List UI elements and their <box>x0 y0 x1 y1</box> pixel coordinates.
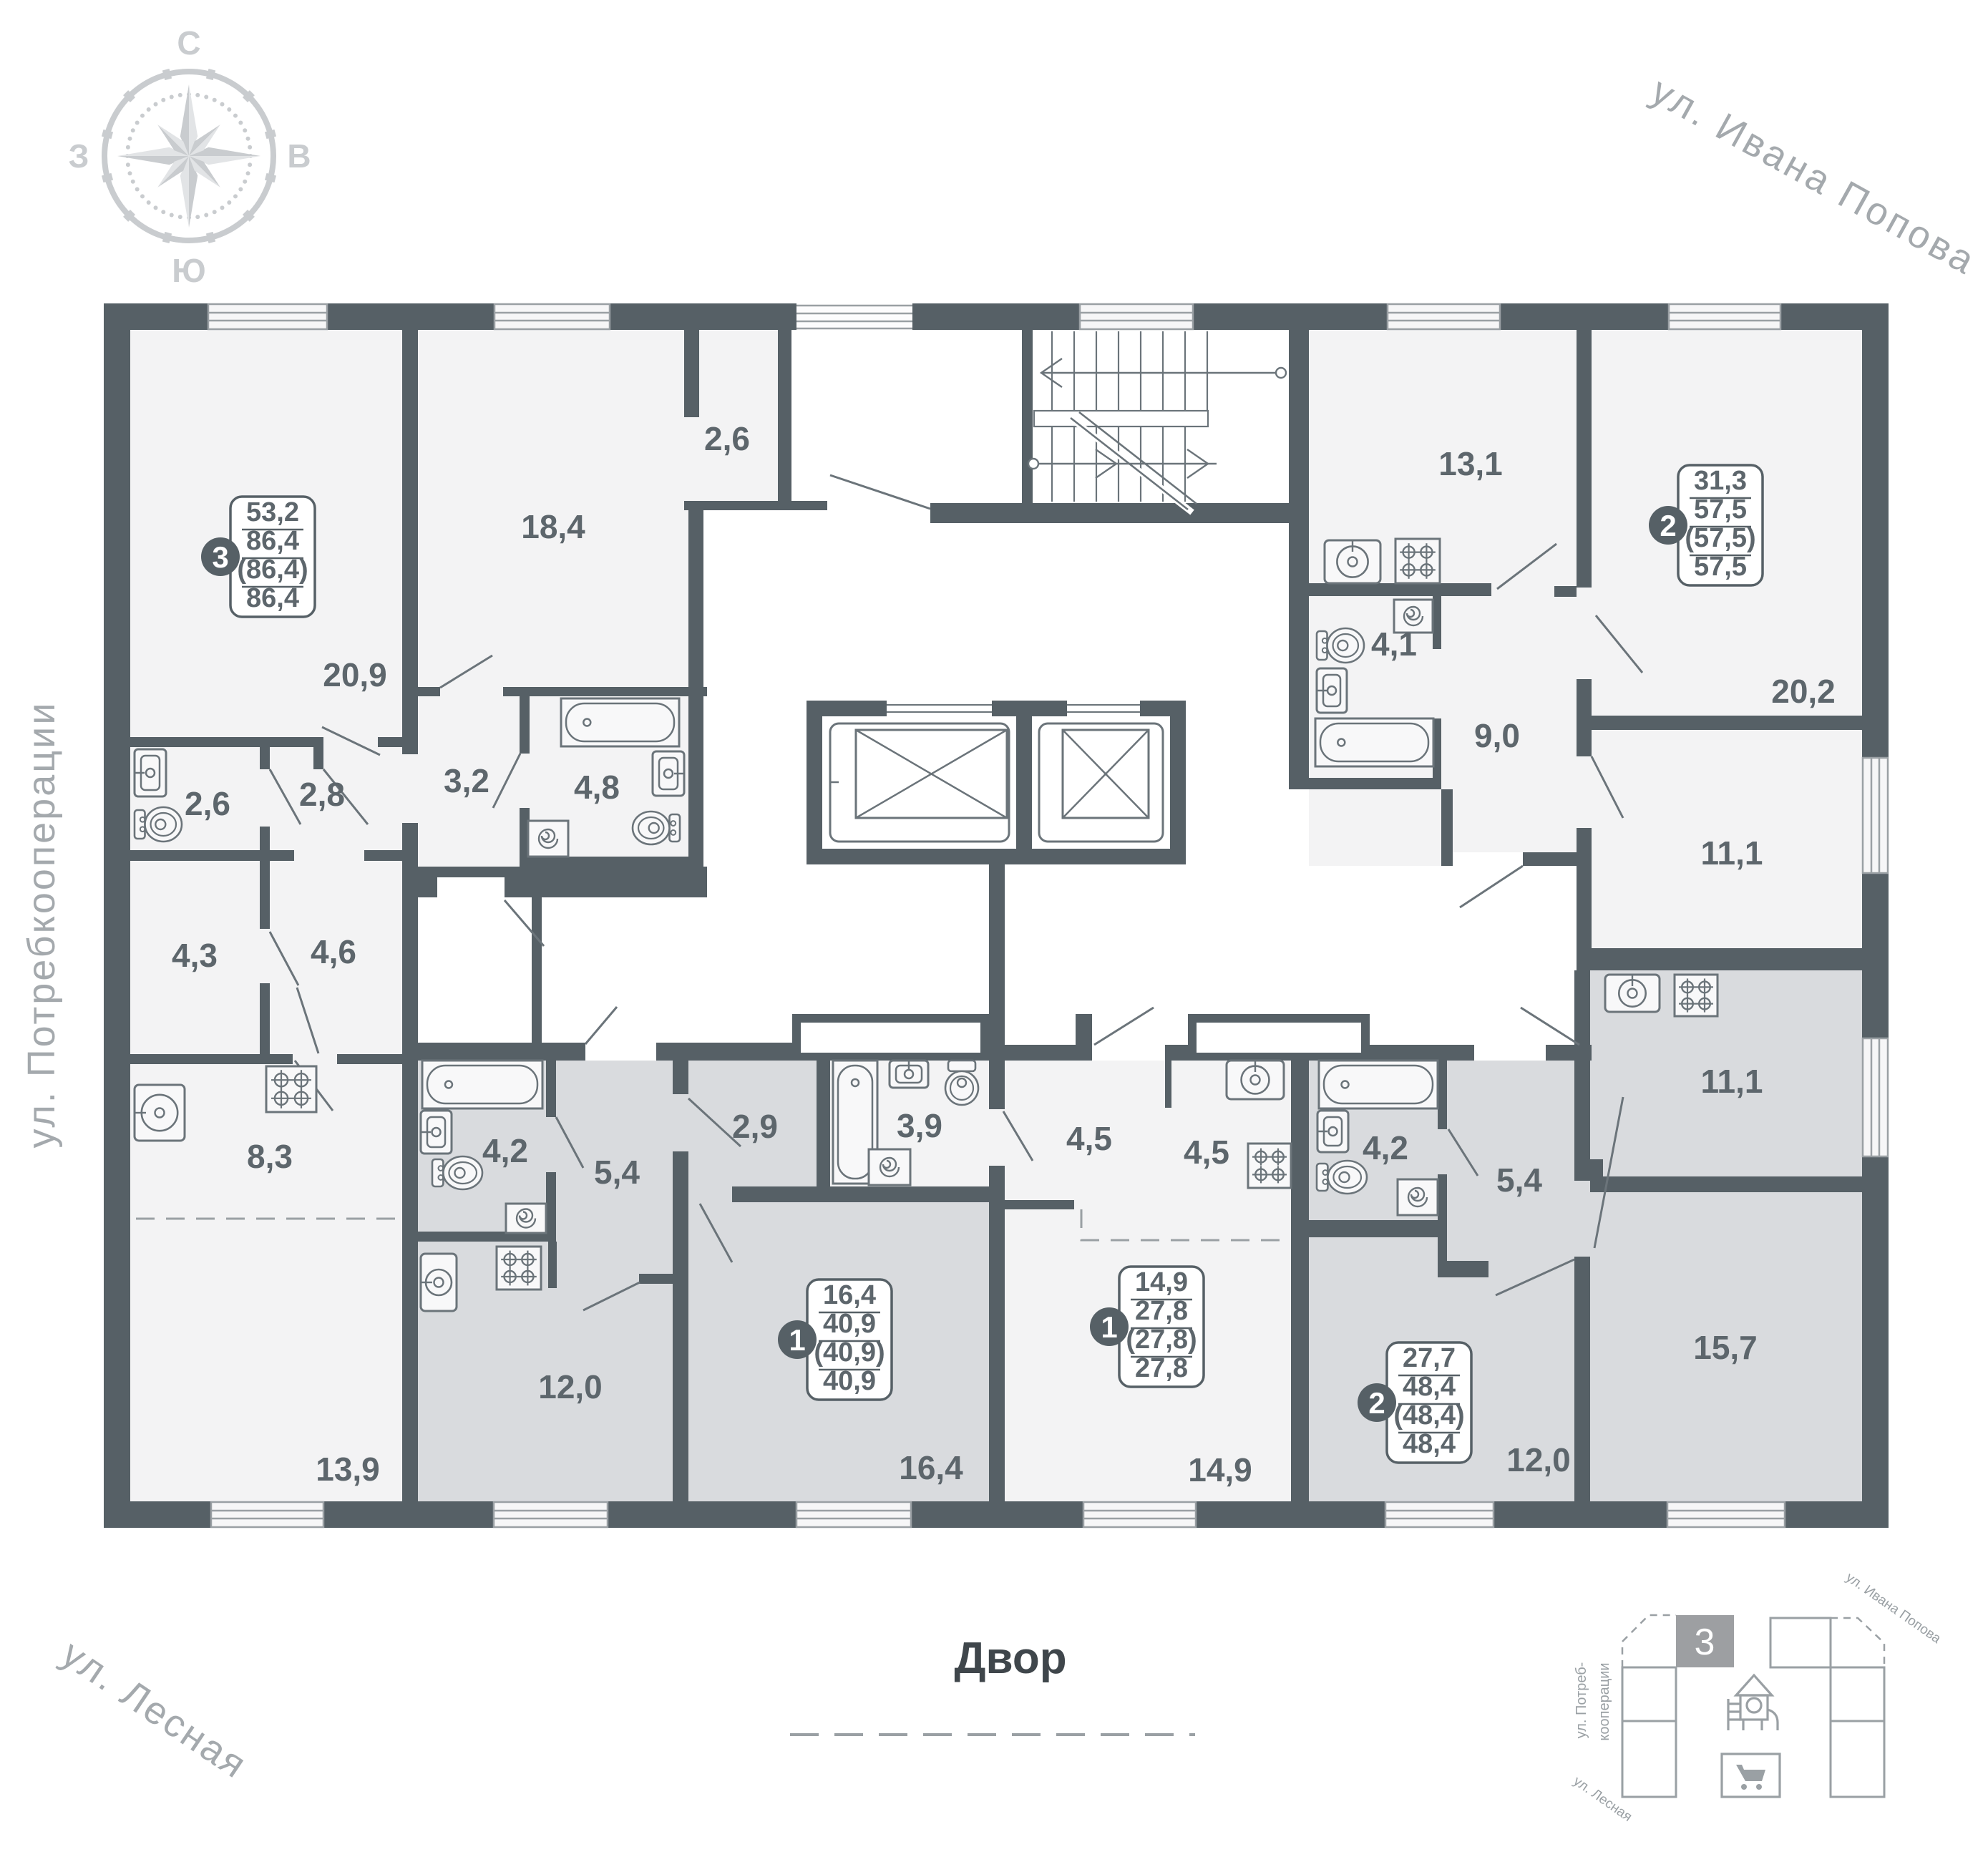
svg-text:4,2: 4,2 <box>482 1132 528 1169</box>
svg-text:4,6: 4,6 <box>311 933 356 970</box>
svg-text:20,2: 20,2 <box>1771 673 1836 710</box>
svg-text:27,7: 27,7 <box>1403 1343 1456 1373</box>
svg-text:31,3: 31,3 <box>1694 466 1747 496</box>
svg-text:20,9: 20,9 <box>323 656 387 693</box>
svg-text:1: 1 <box>789 1323 805 1357</box>
svg-text:2,9: 2,9 <box>732 1108 778 1145</box>
svg-text:5,4: 5,4 <box>1496 1161 1542 1199</box>
svg-text:16,4: 16,4 <box>899 1449 963 1486</box>
svg-text:2,6: 2,6 <box>704 420 750 457</box>
svg-text:4,5: 4,5 <box>1184 1134 1229 1171</box>
svg-text:12,0: 12,0 <box>538 1368 603 1405</box>
svg-text:2: 2 <box>1368 1386 1385 1420</box>
svg-text:4,1: 4,1 <box>1371 625 1417 663</box>
svg-text:53,2: 53,2 <box>246 497 299 527</box>
svg-text:27,8: 27,8 <box>1135 1353 1188 1383</box>
svg-text:2,8: 2,8 <box>299 776 345 813</box>
svg-text:3,9: 3,9 <box>897 1107 942 1144</box>
svg-text:11,1: 11,1 <box>1701 834 1763 872</box>
svg-text:(57,5): (57,5) <box>1685 523 1755 553</box>
svg-text:86,4: 86,4 <box>246 583 299 613</box>
svg-text:8,3: 8,3 <box>247 1138 293 1175</box>
svg-text:14,9: 14,9 <box>1188 1451 1252 1488</box>
svg-text:12,0: 12,0 <box>1506 1441 1571 1478</box>
svg-text:11,1: 11,1 <box>1701 1063 1763 1100</box>
svg-text:ул. Потреб-: ул. Потреб- <box>1574 1662 1589 1739</box>
svg-text:48,4: 48,4 <box>1403 1372 1456 1402</box>
svg-text:27,8: 27,8 <box>1135 1296 1188 1326</box>
svg-text:ул. Ивана Попова: ул. Ивана Попова <box>1843 1570 1944 1647</box>
svg-text:18,4: 18,4 <box>521 508 585 545</box>
svg-text:(86,4): (86,4) <box>237 555 308 585</box>
svg-text:ул. Лесная: ул. Лесная <box>54 1632 255 1788</box>
svg-text:Ю: Ю <box>172 252 205 289</box>
svg-text:9,0: 9,0 <box>1474 717 1520 754</box>
svg-text:кооперации: кооперации <box>1597 1662 1612 1740</box>
svg-text:48,4: 48,4 <box>1403 1429 1456 1459</box>
svg-text:13,1: 13,1 <box>1438 445 1503 482</box>
svg-text:4,3: 4,3 <box>172 937 218 974</box>
svg-text:40,9: 40,9 <box>823 1309 876 1339</box>
svg-text:(48,4): (48,4) <box>1393 1400 1464 1430</box>
svg-text:2: 2 <box>1660 509 1676 542</box>
svg-text:С: С <box>177 24 200 62</box>
svg-text:3: 3 <box>212 540 228 574</box>
svg-text:57,5: 57,5 <box>1694 494 1747 525</box>
svg-text:14,9: 14,9 <box>1135 1267 1188 1297</box>
svg-text:16,4: 16,4 <box>823 1280 876 1310</box>
svg-text:4,5: 4,5 <box>1066 1120 1112 1157</box>
svg-text:15,7: 15,7 <box>1693 1329 1758 1366</box>
svg-text:57,5: 57,5 <box>1694 552 1747 582</box>
svg-text:Двор: Двор <box>954 1634 1066 1683</box>
svg-text:ул. Потребкооперации: ул. Потребкооперации <box>20 701 63 1149</box>
svg-text:3: 3 <box>1695 1622 1715 1663</box>
svg-text:(27,8): (27,8) <box>1126 1325 1197 1355</box>
svg-text:3,2: 3,2 <box>444 762 489 799</box>
svg-text:(40,9): (40,9) <box>814 1337 885 1368</box>
svg-text:1: 1 <box>1101 1310 1117 1344</box>
svg-text:З: З <box>69 137 89 175</box>
svg-text:4,8: 4,8 <box>574 769 620 806</box>
svg-text:5,4: 5,4 <box>594 1154 640 1191</box>
svg-text:40,9: 40,9 <box>823 1366 876 1396</box>
svg-text:13,9: 13,9 <box>316 1451 380 1488</box>
svg-text:4,2: 4,2 <box>1363 1129 1408 1166</box>
svg-text:86,4: 86,4 <box>246 526 299 556</box>
svg-text:ул. Ивана Попова: ул. Ивана Попова <box>1644 69 1984 283</box>
svg-text:В: В <box>287 137 311 175</box>
svg-text:2,6: 2,6 <box>185 785 230 822</box>
